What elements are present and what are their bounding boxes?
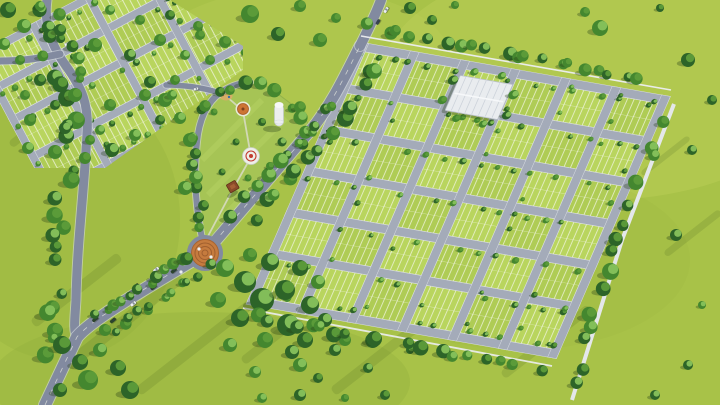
fountain-plaza — [243, 148, 260, 165]
flower-bed — [236, 102, 251, 117]
gate-pillar — [179, 270, 182, 273]
scene-svg — [0, 0, 720, 405]
aerial-site-render — [0, 0, 720, 405]
